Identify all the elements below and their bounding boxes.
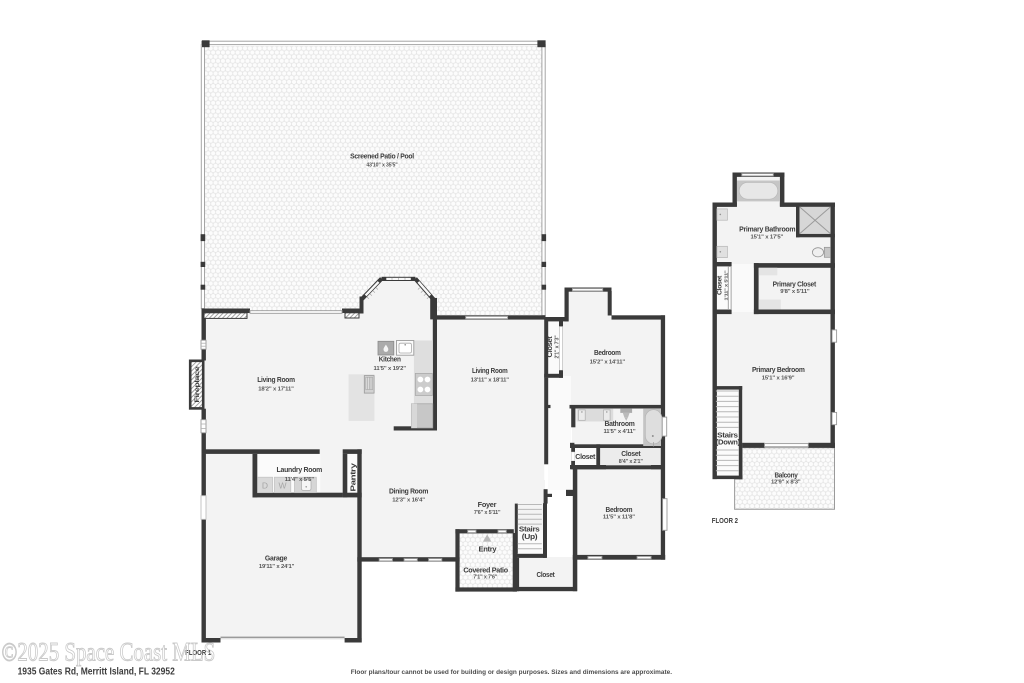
svg-text:©2025 Space Coast MLS: ©2025 Space Coast MLS	[2, 638, 216, 667]
svg-text:13'11" x 18'11": 13'11" x 18'11"	[471, 378, 510, 384]
svg-text:Bathroom: Bathroom	[604, 419, 635, 428]
svg-text:Living Room: Living Room	[257, 375, 295, 384]
svg-text:11'5" x 11'8": 11'5" x 11'8"	[603, 515, 635, 521]
svg-text:Primary Closet: Primary Closet	[773, 279, 817, 288]
svg-text:(Up): (Up)	[522, 532, 538, 541]
svg-text:15'2" x 14'11": 15'2" x 14'11"	[590, 360, 626, 366]
svg-text:9'8" x 5'11": 9'8" x 5'11"	[780, 289, 810, 295]
svg-text:Covered Patio: Covered Patio	[463, 566, 508, 575]
svg-text:(Down): (Down)	[716, 437, 741, 446]
svg-text:15'1" x 17'5": 15'1" x 17'5"	[750, 234, 783, 240]
svg-text:11'5" x 19'2": 11'5" x 19'2"	[374, 366, 407, 372]
svg-text:FLOOR 2: FLOOR 2	[712, 516, 738, 525]
svg-text:Balcony: Balcony	[774, 470, 798, 479]
svg-text:Entry: Entry	[479, 545, 498, 554]
svg-text:Primary Bathroom: Primary Bathroom	[739, 224, 796, 233]
svg-text:Closet: Closet	[575, 452, 596, 461]
svg-text:Pantry: Pantry	[348, 462, 357, 491]
svg-text:Bedroom: Bedroom	[606, 505, 633, 514]
svg-text:D: D	[262, 480, 268, 490]
svg-text:12'9" x 8'3": 12'9" x 8'3"	[771, 480, 801, 486]
svg-text:Fireplace: Fireplace	[194, 366, 201, 403]
svg-text:Garage: Garage	[265, 553, 287, 562]
svg-text:18'2" x 17'11": 18'2" x 17'11"	[258, 387, 294, 393]
svg-text:Kitchen: Kitchen	[379, 354, 402, 363]
svg-text:Screened Patio / Pool: Screened Patio / Pool	[350, 151, 414, 160]
svg-text:Dining Room: Dining Room	[389, 486, 429, 495]
svg-text:1'11" x 5'11": 1'11" x 5'11"	[724, 271, 730, 301]
svg-text:Closet: Closet	[621, 449, 641, 458]
svg-text:Closet: Closet	[545, 336, 554, 358]
svg-text:1935 Gates Rd, Merritt Island,: 1935 Gates Rd, Merritt Island, FL 32952	[18, 666, 176, 677]
svg-text:43'10" x 35'5": 43'10" x 35'5"	[366, 162, 398, 168]
svg-text:Bedroom: Bedroom	[594, 348, 621, 357]
svg-text:2'1" x 7'3": 2'1" x 7'3"	[554, 335, 560, 359]
svg-text:8'4" x 2'1": 8'4" x 2'1"	[619, 459, 644, 465]
svg-text:11'4" x 5'5": 11'4" x 5'5"	[285, 477, 315, 483]
svg-text:Closet: Closet	[537, 570, 556, 579]
svg-text:Floor plans/tour cannot be use: Floor plans/tour cannot be used for buil…	[351, 669, 672, 676]
svg-text:15'1" x 16'9": 15'1" x 16'9"	[762, 375, 795, 381]
svg-text:7'6" x 5'11": 7'6" x 5'11"	[474, 510, 501, 516]
svg-text:11'5" x 4'11": 11'5" x 4'11"	[604, 429, 636, 435]
svg-text:Laundry Room: Laundry Room	[277, 465, 323, 474]
svg-text:19'11" x 24'1": 19'11" x 24'1"	[259, 564, 295, 570]
svg-text:Living Room: Living Room	[472, 366, 508, 375]
svg-text:Foyer: Foyer	[478, 500, 497, 509]
svg-text:7'1" x 7'6": 7'1" x 7'6"	[473, 574, 498, 580]
svg-text:Primary Bedroom: Primary Bedroom	[752, 365, 805, 374]
svg-text:Closet: Closet	[717, 276, 723, 295]
svg-text:12'3" x 16'4": 12'3" x 16'4"	[392, 498, 425, 504]
